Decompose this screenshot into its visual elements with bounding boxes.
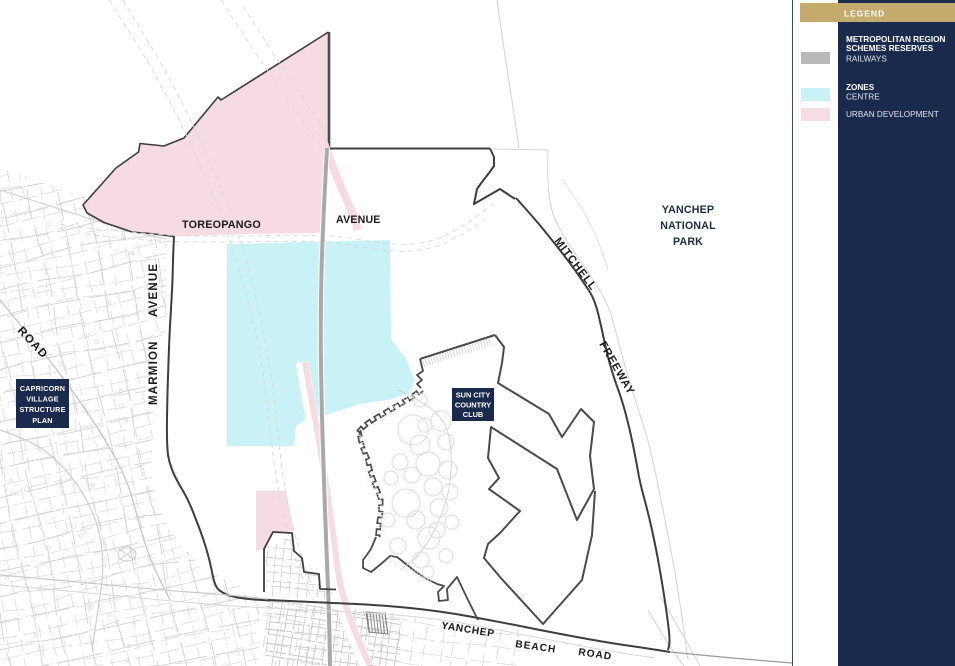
svg-text:TOREOPANGO: TOREOPANGO [182,219,261,231]
svg-text:AVENUE: AVENUE [336,214,381,226]
svg-text:RAILWAYS: RAILWAYS [846,55,887,64]
svg-text:NATIONAL: NATIONAL [660,220,716,232]
svg-text:SCHEMES RESERVES: SCHEMES RESERVES [846,44,934,53]
svg-text:STRUCTURE: STRUCTURE [19,405,65,414]
svg-text:CLUB: CLUB [463,410,484,419]
svg-text:ZONES: ZONES [846,83,875,92]
svg-text:YANCHEP: YANCHEP [662,204,714,216]
svg-text:PLAN: PLAN [32,416,52,425]
svg-text:PARK: PARK [673,236,703,248]
svg-text:METROPOLITAN REGION: METROPOLITAN REGION [846,35,946,44]
svg-text:CAPRICORN: CAPRICORN [20,384,65,393]
svg-text:AVENUE: AVENUE [148,263,160,317]
svg-text:URBAN DEVELOPMENT: URBAN DEVELOPMENT [846,110,939,119]
svg-text:COUNTRY: COUNTRY [455,400,491,409]
svg-text:MARMION: MARMION [148,340,160,405]
svg-text:SUN CITY: SUN CITY [456,391,491,400]
svg-text:LEGEND: LEGEND [844,9,885,19]
svg-text:VILLAGE: VILLAGE [26,395,59,404]
svg-text:CENTRE: CENTRE [846,93,880,102]
